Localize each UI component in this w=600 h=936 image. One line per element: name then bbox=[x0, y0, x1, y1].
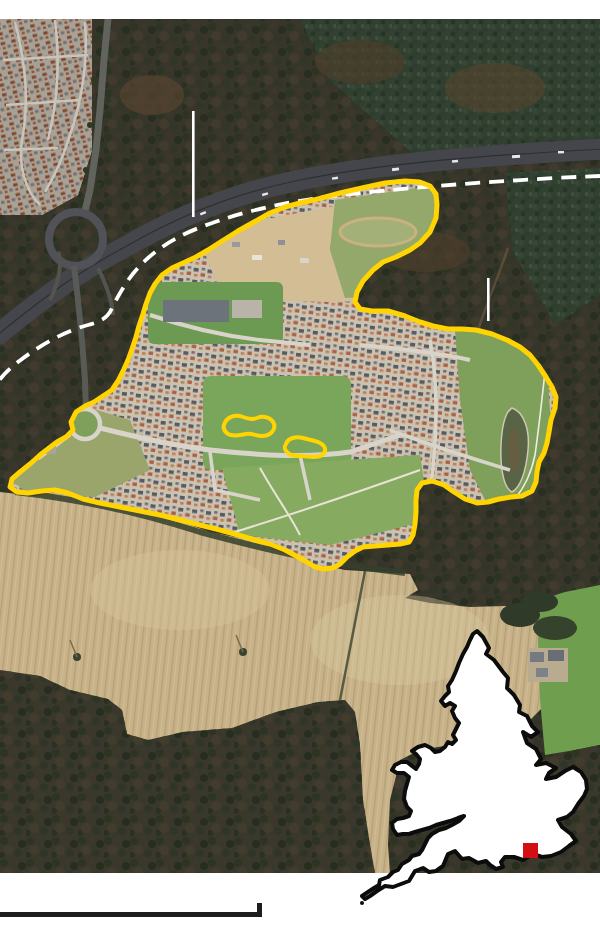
location-marker bbox=[523, 843, 538, 858]
scale-bar-end-tick bbox=[257, 903, 262, 917]
map-canvas bbox=[0, 0, 600, 936]
satellite-map-graphic bbox=[0, 0, 600, 936]
playground bbox=[232, 300, 262, 318]
leader-line-1 bbox=[192, 111, 195, 217]
leader-line-2 bbox=[487, 278, 490, 321]
school-building bbox=[163, 300, 229, 322]
scale-bar-line bbox=[0, 912, 262, 917]
existing-residential-estate bbox=[0, 19, 92, 215]
scilly-dot bbox=[360, 901, 364, 905]
